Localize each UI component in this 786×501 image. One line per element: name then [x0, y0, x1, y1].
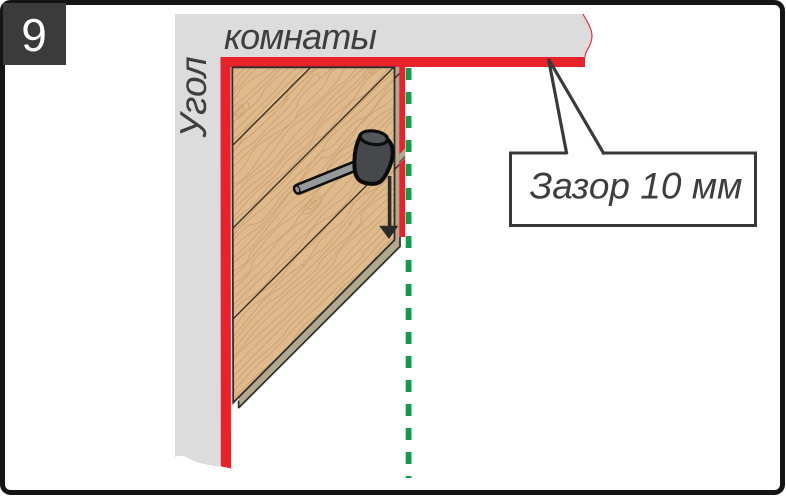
svg-text:комнаты: комнаты [224, 16, 377, 57]
svg-text:Зазор 10 мм: Зазор 10 мм [530, 166, 743, 207]
svg-text:Угол: Угол [173, 56, 214, 138]
svg-text:9: 9 [21, 9, 47, 61]
